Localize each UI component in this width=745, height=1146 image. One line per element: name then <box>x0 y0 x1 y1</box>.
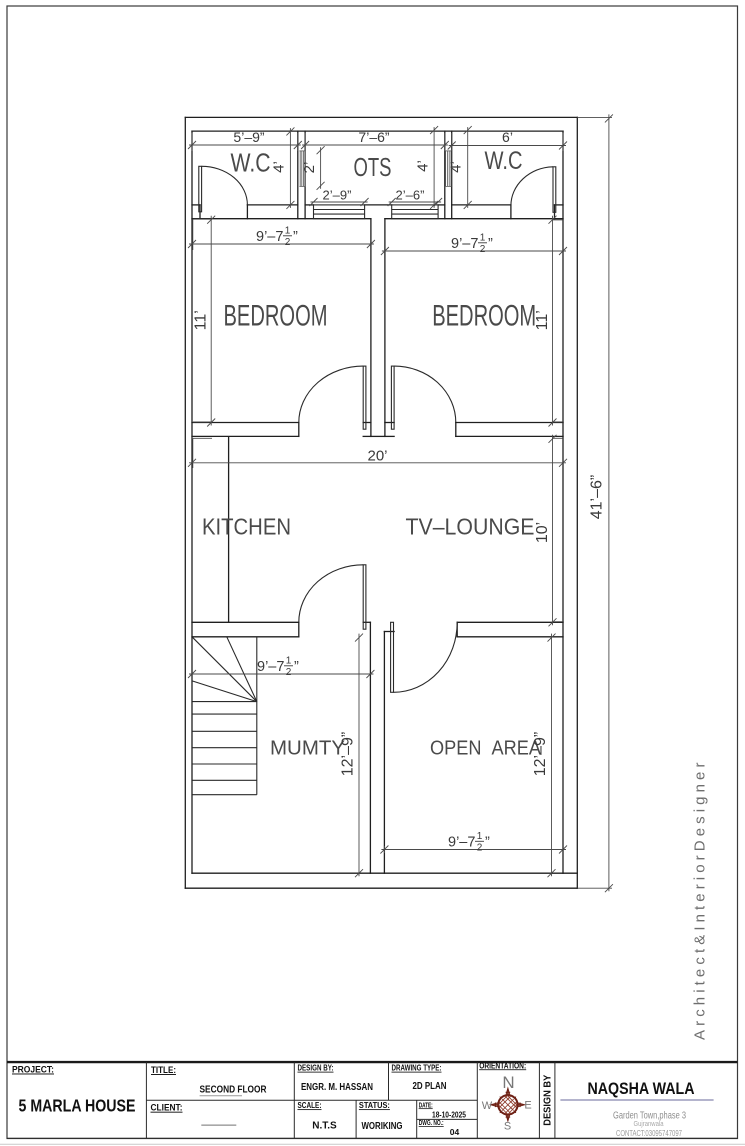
svg-text:1: 1 <box>477 831 483 842</box>
svg-text:S: S <box>504 1121 511 1133</box>
svg-text:04: 04 <box>450 1127 460 1137</box>
svg-text:12’–9”: 12’–9” <box>532 732 549 776</box>
svg-text:ORIENTATION:: ORIENTATION: <box>479 1060 526 1070</box>
svg-text:2’: 2’ <box>301 162 318 174</box>
svg-text:DRAWING TYPE:: DRAWING TYPE: <box>392 1063 442 1073</box>
svg-text:Architect&InteriorDesigner: Architect&InteriorDesigner <box>692 760 709 1040</box>
svg-text:OTS: OTS <box>354 152 392 182</box>
svg-text:”: ” <box>294 659 299 675</box>
svg-text:CLIENT:: CLIENT: <box>151 1103 183 1114</box>
svg-text:41’–6”: 41’–6” <box>589 475 606 519</box>
svg-text:W.C: W.C <box>231 148 271 178</box>
svg-text:9’–7: 9’–7 <box>257 659 284 675</box>
svg-text:10’: 10’ <box>534 522 551 543</box>
svg-text:W: W <box>482 1100 493 1112</box>
svg-text:DESIGN BY: DESIGN BY <box>543 1074 554 1125</box>
svg-text:2D PLAN: 2D PLAN <box>413 1080 447 1092</box>
svg-text:SCALE:: SCALE: <box>298 1100 322 1110</box>
svg-text:WORIKING: WORIKING <box>362 1120 403 1132</box>
svg-text:2’–9”: 2’–9” <box>323 188 352 203</box>
svg-text:”: ” <box>485 835 490 851</box>
svg-text:12’–9”: 12’–9” <box>340 732 357 776</box>
svg-text:9’–7: 9’–7 <box>256 229 283 245</box>
svg-text:MUMTY: MUMTY <box>270 738 345 760</box>
svg-text:2: 2 <box>477 843 483 854</box>
svg-text:20’: 20’ <box>367 448 387 465</box>
svg-text:ENGR. M. HASSAN: ENGR. M. HASSAN <box>301 1082 373 1093</box>
svg-text:6’: 6’ <box>502 129 513 145</box>
svg-text:4’: 4’ <box>271 161 288 173</box>
svg-text:9’–7: 9’–7 <box>451 236 478 252</box>
svg-text:11’: 11’ <box>534 310 551 330</box>
svg-text:1: 1 <box>286 656 292 667</box>
svg-text:4’: 4’ <box>415 160 432 172</box>
svg-text:9’–7: 9’–7 <box>448 835 475 851</box>
svg-text:TV–LOUNGE: TV–LOUNGE <box>406 514 535 540</box>
svg-text:2’–6”: 2’–6” <box>396 188 425 203</box>
svg-text:”: ” <box>293 229 298 245</box>
svg-text:Gujranwala: Gujranwala <box>634 1121 664 1128</box>
svg-text:5’–9”: 5’–9” <box>233 129 264 145</box>
svg-text:2: 2 <box>480 244 486 255</box>
svg-text:N.T.S: N.T.S <box>312 1120 337 1131</box>
svg-text:7’–6”: 7’–6” <box>358 129 389 145</box>
svg-text:PROJECT:: PROJECT: <box>12 1065 54 1076</box>
svg-text:1: 1 <box>285 226 291 237</box>
svg-text:NAQSHA WALA: NAQSHA WALA <box>588 1080 695 1098</box>
svg-text:”: ” <box>488 236 493 252</box>
svg-text:BEDROOM: BEDROOM <box>432 299 536 332</box>
svg-text:CONTACT:03095747097: CONTACT:03095747097 <box>616 1128 682 1138</box>
svg-text:SECOND FLOOR: SECOND FLOOR <box>200 1083 267 1095</box>
svg-text:BEDROOM: BEDROOM <box>224 299 328 332</box>
svg-text:STATUS:: STATUS: <box>359 1100 390 1110</box>
svg-text:OPEN AREA: OPEN AREA <box>430 738 542 760</box>
svg-text:11’: 11’ <box>193 310 210 330</box>
svg-text:KITCHEN: KITCHEN <box>202 514 291 540</box>
svg-text:5 MARLA HOUSE: 5 MARLA HOUSE <box>19 1096 136 1116</box>
svg-text:TITLE:: TITLE: <box>151 1065 176 1076</box>
svg-text:N: N <box>502 1073 514 1092</box>
svg-text:DATE:: DATE: <box>419 1100 433 1109</box>
svg-text:1: 1 <box>480 233 486 244</box>
svg-text:4’: 4’ <box>448 161 465 173</box>
svg-text:2: 2 <box>285 237 291 248</box>
svg-text:2: 2 <box>286 667 292 678</box>
svg-text:DESIGN BY:: DESIGN BY: <box>298 1063 334 1073</box>
svg-text:E: E <box>524 1100 531 1112</box>
svg-text:W.C: W.C <box>485 147 523 175</box>
svg-text:DWG. NO.:: DWG. NO.: <box>419 1118 444 1127</box>
